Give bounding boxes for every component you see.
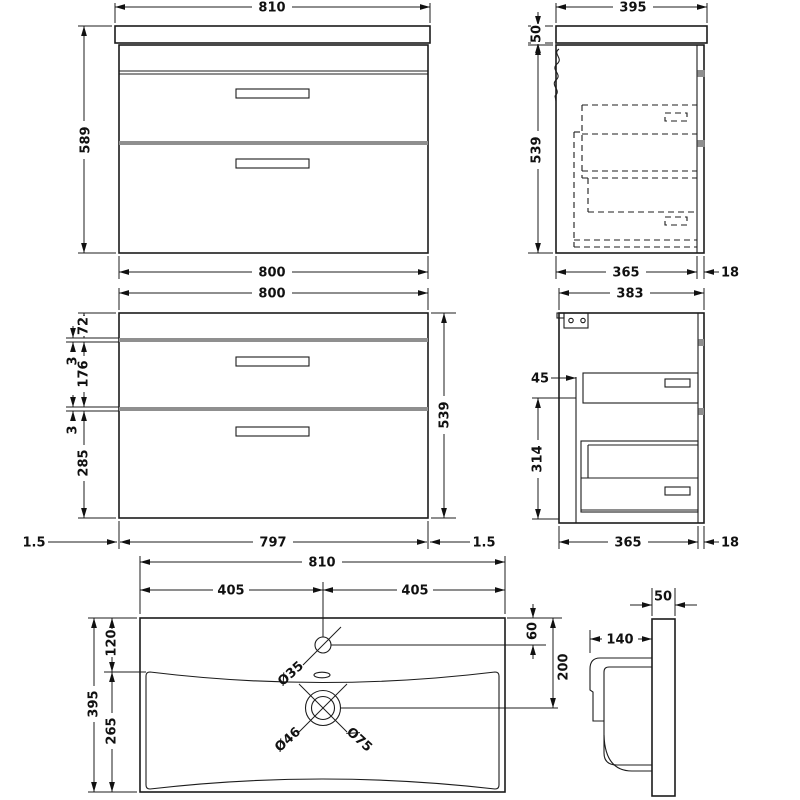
centre-and-leader-lines xyxy=(299,582,558,732)
wall-bracket xyxy=(564,313,588,328)
view-front-overall: 810 589 800 xyxy=(77,1,430,281)
drawer-gap xyxy=(119,407,428,411)
basin-back-rim xyxy=(652,619,675,796)
dim-label: 285 xyxy=(77,449,92,476)
dim-label: 176 xyxy=(77,360,92,387)
dim-inner-height: 314 xyxy=(531,398,577,519)
diameter-label: Ø46 xyxy=(272,725,304,756)
dim-label: 395 xyxy=(87,690,102,717)
dim-label: 50 xyxy=(530,25,545,43)
dim-label: 365 xyxy=(612,266,639,281)
dim-label: 539 xyxy=(530,136,545,163)
dim-label: 60 xyxy=(526,622,541,640)
hidden-drawer-boxes xyxy=(574,105,697,247)
dim-bowl-projection: 140 xyxy=(590,630,652,653)
dim-label: 797 xyxy=(259,536,286,551)
hidden-handle xyxy=(665,217,687,225)
dim-chain-left: 72 3 176 3 285 xyxy=(66,313,120,518)
dim-label: 365 xyxy=(614,536,641,551)
drawer-handle xyxy=(236,159,309,168)
dim-label: 395 xyxy=(619,1,646,16)
drawer-box-upper xyxy=(583,373,698,403)
diameter-label: Ø75 xyxy=(343,725,375,756)
drawer-handle xyxy=(236,89,309,98)
bracket-screw-hole xyxy=(569,318,573,322)
dim-label: 810 xyxy=(308,556,335,571)
dim-label: 72 xyxy=(77,317,92,335)
worktop-front xyxy=(115,26,430,43)
dim-back-gap: 45 xyxy=(531,372,576,387)
drawer-gap-side xyxy=(699,408,705,415)
dim-depth-top: 383 xyxy=(559,287,704,311)
dim-label: 200 xyxy=(557,653,572,680)
dim-label: 539 xyxy=(438,401,453,428)
dim-label: 18 xyxy=(721,536,739,551)
drawer-separators-front xyxy=(119,71,428,145)
dim-label: 405 xyxy=(217,584,244,599)
dim-side-height: 539 xyxy=(528,45,553,253)
drawer-gap-side xyxy=(698,70,705,77)
cabinet-side xyxy=(556,45,704,253)
drawer-handle xyxy=(665,379,690,387)
cabinet-front-detail xyxy=(119,313,428,518)
dim-label: 45 xyxy=(531,372,549,387)
dim-label: 140 xyxy=(606,633,633,648)
drawer-gap-side xyxy=(699,339,705,346)
dim-label: 800 xyxy=(258,266,285,281)
dim-label: 3 xyxy=(66,425,81,434)
dim-rim-thickness: 50 xyxy=(630,588,697,616)
technical-drawing-canvas: 810 589 800 xyxy=(0,0,800,800)
dim-label: 383 xyxy=(616,287,643,302)
diameter-label: Ø35 xyxy=(275,659,307,690)
drawer-gap xyxy=(119,338,428,342)
dim-label: 120 xyxy=(105,629,120,656)
dim-side-depth-base: 365 18 xyxy=(556,256,739,281)
dim-tap-waste-offsets: 60 200 xyxy=(507,604,572,708)
dim-label: 1.5 xyxy=(22,536,45,551)
dim-front-width-top: 810 xyxy=(115,1,430,24)
drawer-handle xyxy=(236,357,309,366)
bowl-profile-bottom xyxy=(604,735,652,771)
dim-base-row: 365 18 xyxy=(559,526,739,551)
basin-bowl-inner xyxy=(146,672,499,789)
dim-base-row: 797 1.5 1.5 xyxy=(22,521,495,551)
dim-height-right: 539 xyxy=(431,313,456,518)
technical-drawing-page: 810 589 800 xyxy=(0,0,800,800)
dim-label: 50 xyxy=(654,590,672,605)
dim-label: 810 xyxy=(258,1,285,16)
drawer-handle xyxy=(665,487,690,495)
view-basin-plan: Ø35 Ø46 Ø75 810 405 405 395 120 xyxy=(87,556,572,793)
cabinet-front xyxy=(119,45,428,253)
drawer-gap-side xyxy=(698,140,705,147)
dim-label: 1.5 xyxy=(472,536,495,551)
dim-width-top: 800 xyxy=(119,287,428,311)
drawer-handle xyxy=(236,427,309,436)
hidden-handle xyxy=(665,113,687,121)
worktop-side xyxy=(556,26,707,43)
basin-outline xyxy=(140,618,505,792)
drawer-box-lower xyxy=(581,441,698,512)
view-side-overall: 395 50 539 365 18 xyxy=(528,1,739,281)
bowl-profile-inner xyxy=(604,667,652,765)
dim-front-height: 589 xyxy=(77,26,116,253)
dim-label: 405 xyxy=(401,584,428,599)
dim-label: 800 xyxy=(258,287,285,302)
dim-label: 18 xyxy=(721,266,739,281)
view-side-detail: 383 45 314 365 18 xyxy=(531,287,740,551)
dim-label: 265 xyxy=(105,717,120,744)
view-basin-side: 50 140 xyxy=(590,588,697,796)
overflow-slot xyxy=(314,672,330,678)
dim-label: 589 xyxy=(79,126,94,153)
dim-worktop-height: 50 xyxy=(528,12,553,57)
dim-label: 314 xyxy=(531,445,546,472)
drawer-gap xyxy=(119,141,428,145)
view-front-detail: 800 72 3 176 3 285 xyxy=(22,287,495,551)
dim-front-width-base: 800 xyxy=(119,256,428,281)
dim-side-depth-top: 395 xyxy=(556,1,707,24)
bracket-screw-hole xyxy=(581,318,585,322)
